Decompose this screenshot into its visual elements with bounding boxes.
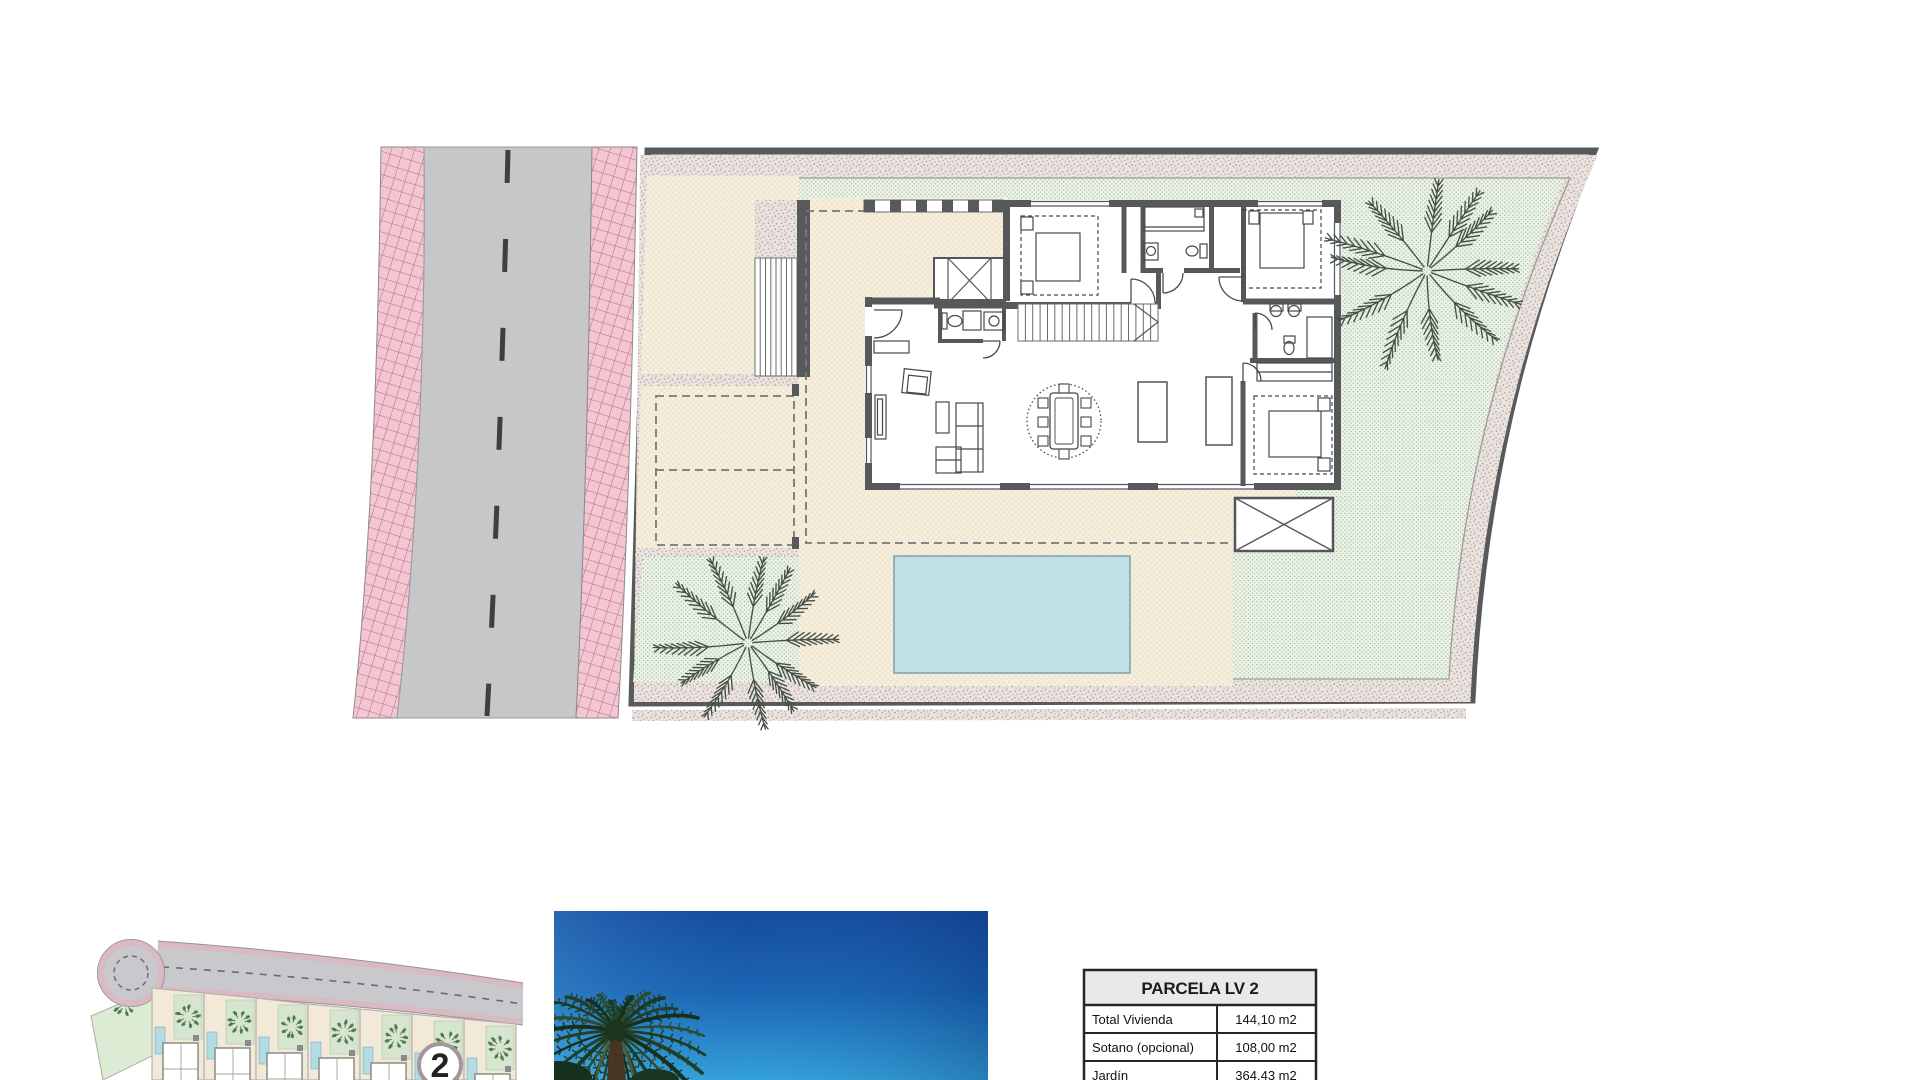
- svg-text:Sotano (opcional): Sotano (opcional): [1092, 1040, 1194, 1055]
- svg-text:Jardín: Jardín: [1092, 1068, 1128, 1080]
- svg-text:PARCELA LV 2: PARCELA LV 2: [1141, 979, 1258, 998]
- svg-text:108,00 m2: 108,00 m2: [1235, 1040, 1296, 1055]
- svg-text:144,10 m2: 144,10 m2: [1235, 1012, 1296, 1027]
- svg-text:Total Vivienda: Total Vivienda: [1092, 1012, 1173, 1027]
- svg-text:2: 2: [431, 1047, 450, 1080]
- svg-text:364,43 m2: 364,43 m2: [1235, 1068, 1296, 1080]
